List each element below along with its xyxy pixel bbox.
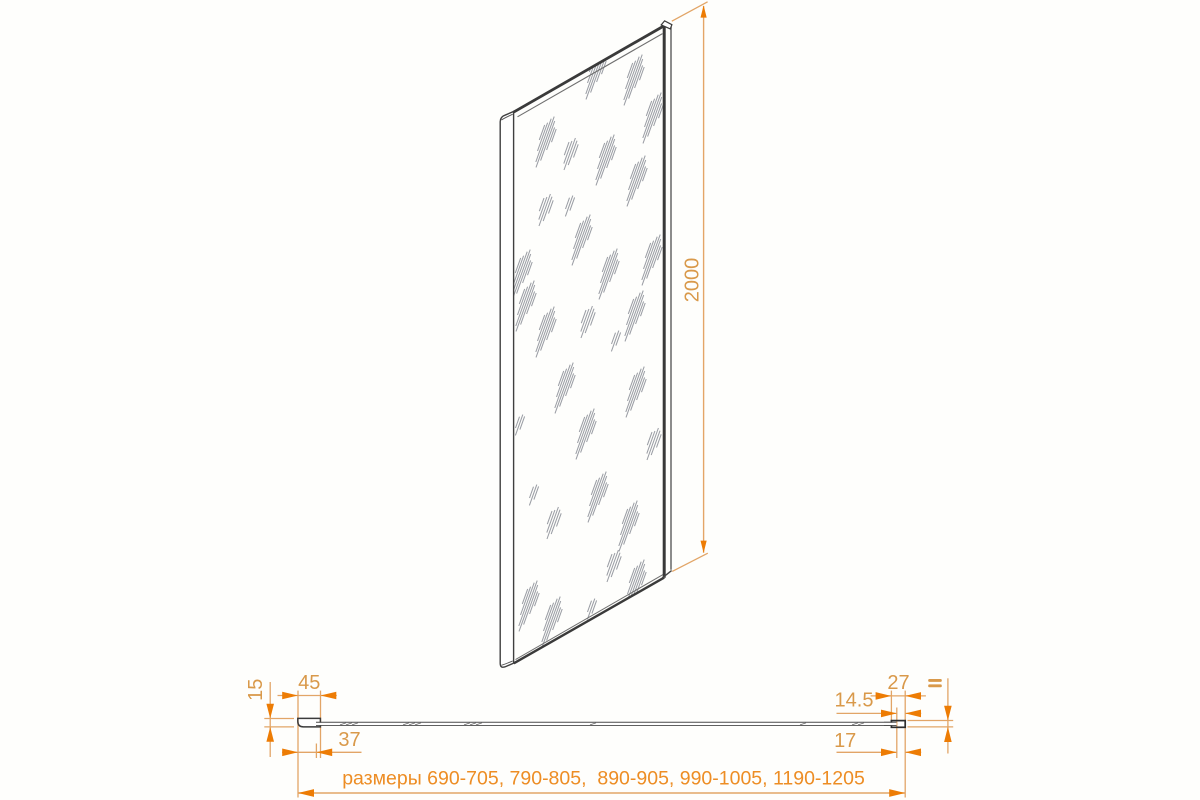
svg-text:37: 37 — [338, 729, 360, 751]
svg-text:45: 45 — [298, 672, 320, 694]
svg-text:27: 27 — [887, 672, 909, 694]
svg-text:14.5: 14.5 — [835, 689, 874, 711]
svg-text:15: 15 — [245, 679, 267, 701]
svg-text:17: 17 — [834, 730, 856, 752]
svg-text:размеры 690-705, 790-805, 890: размеры 690-705, 790-805, 890-905, 990-1… — [342, 768, 865, 790]
svg-text:2000: 2000 — [681, 258, 703, 303]
